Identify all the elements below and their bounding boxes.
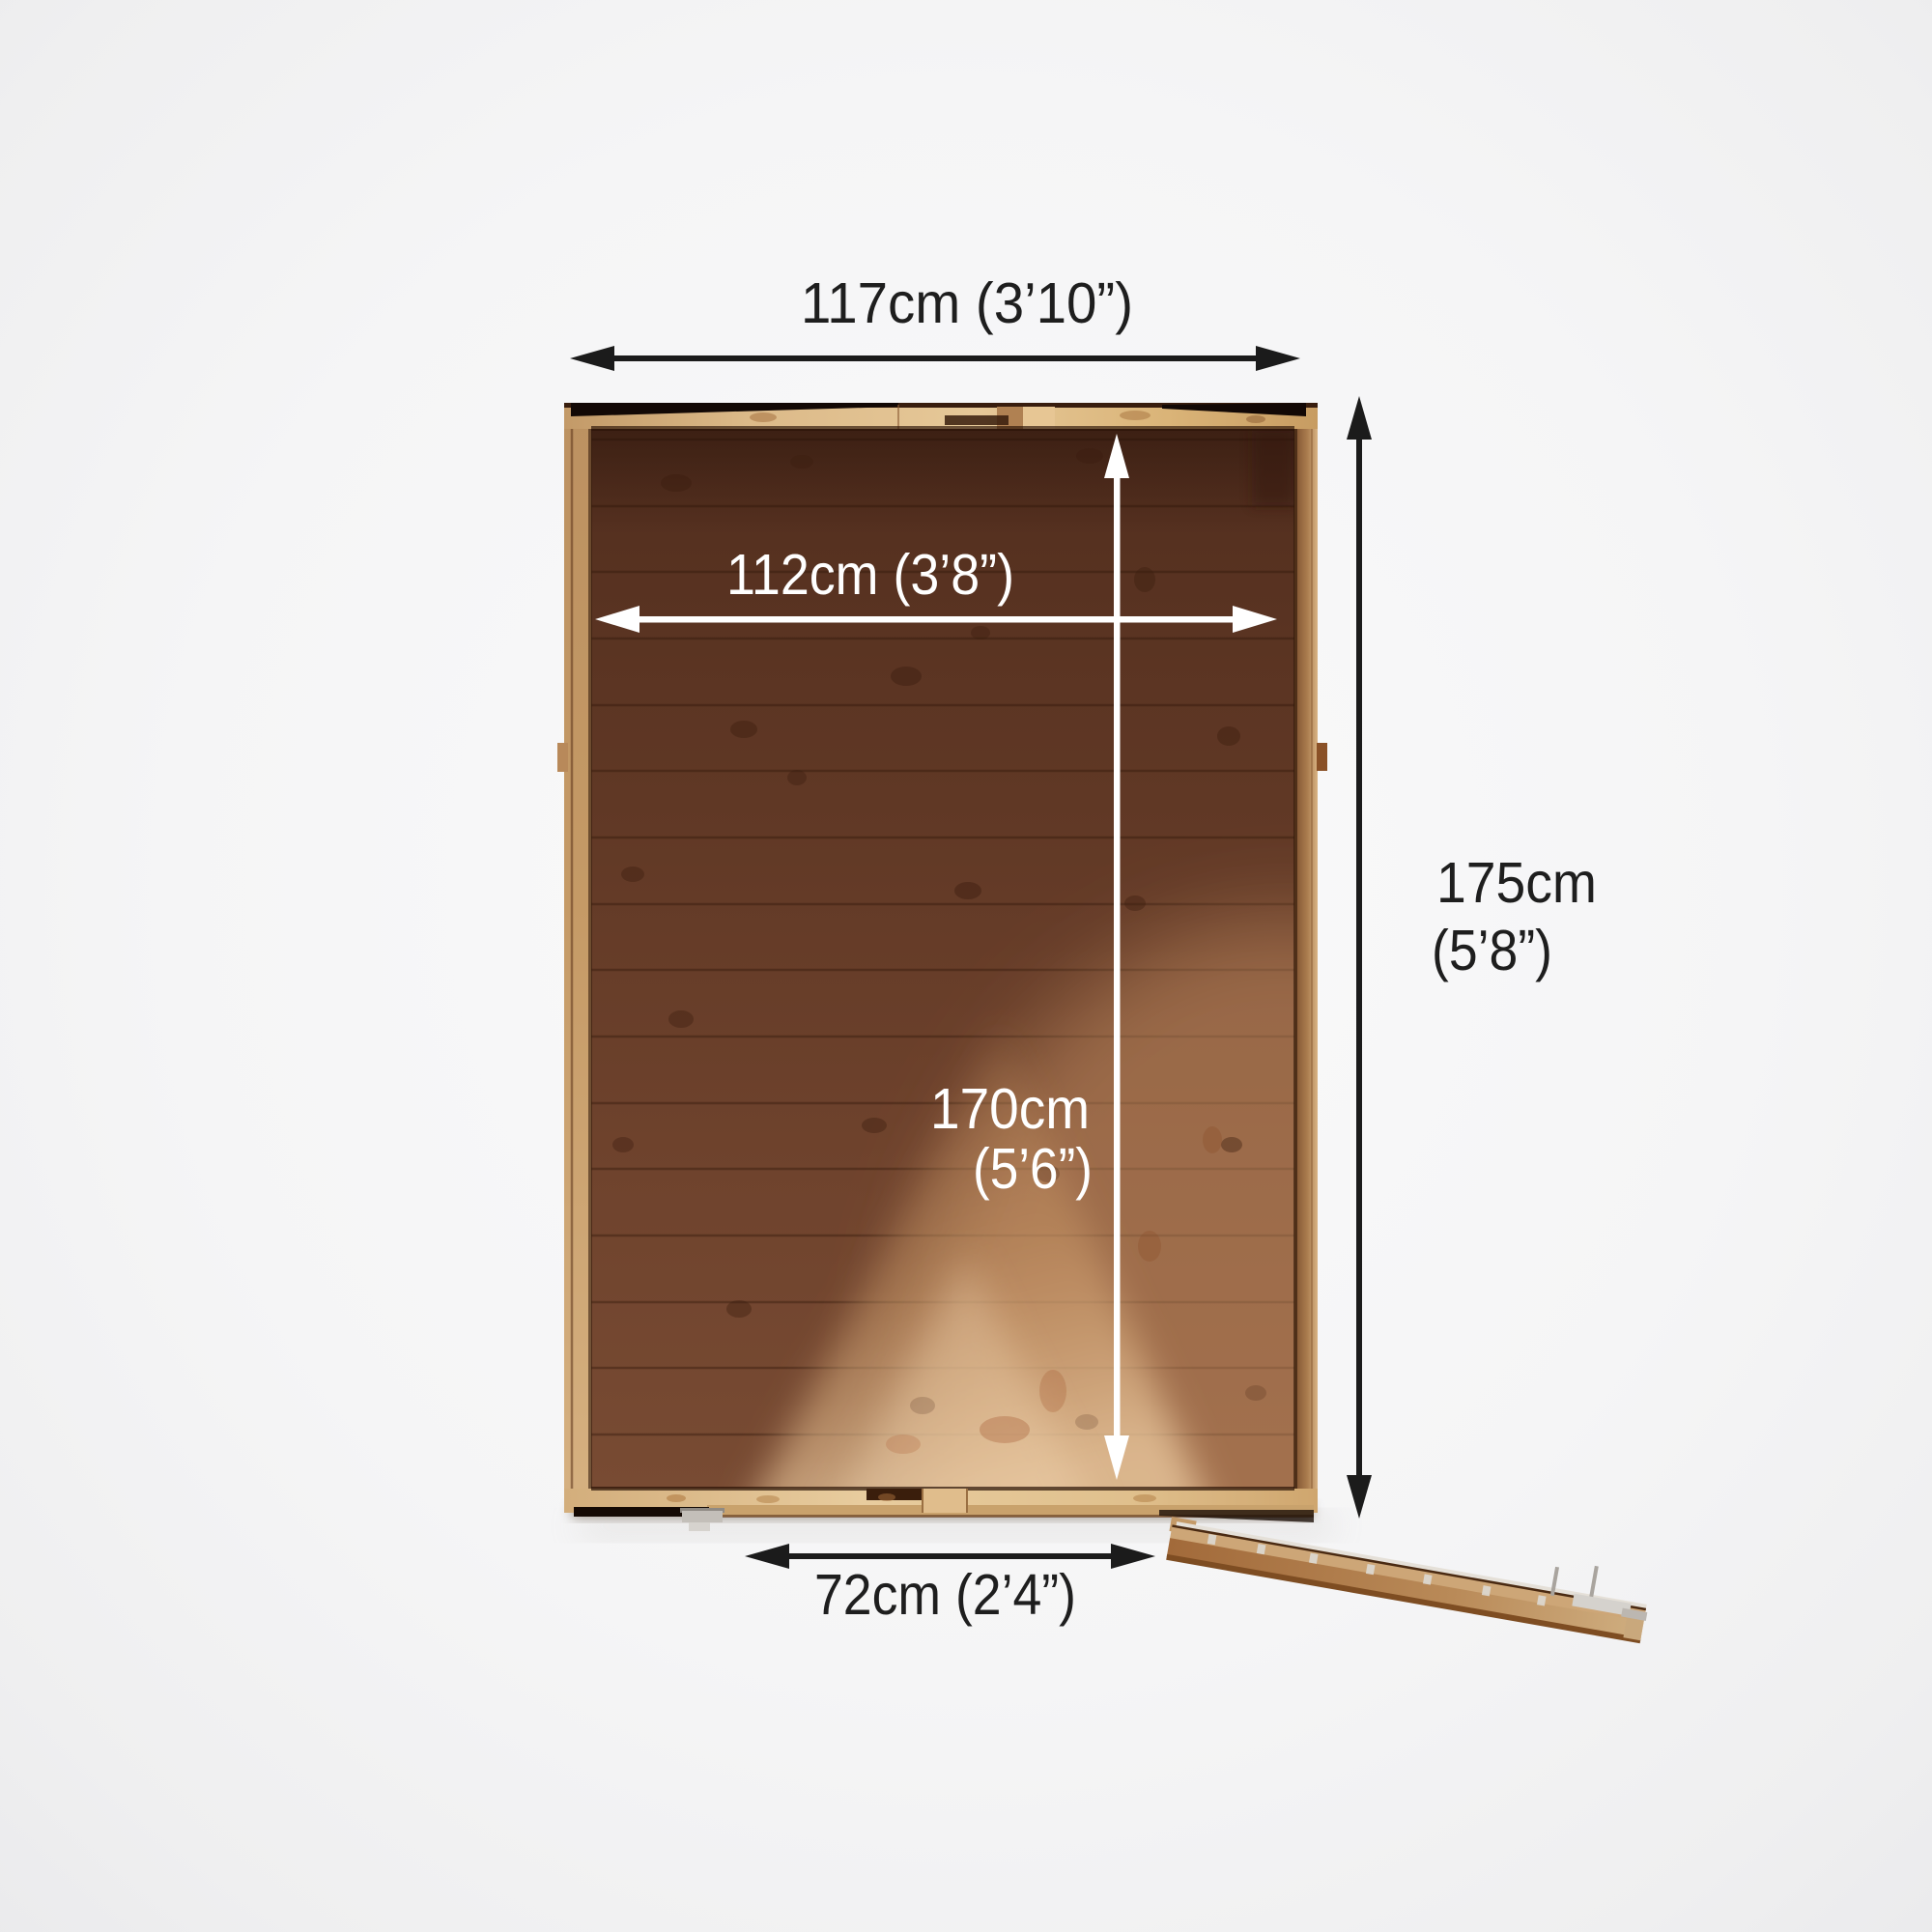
svg-text:72cm (2’4”): 72cm (2’4”)	[814, 1563, 1076, 1627]
svg-text:(5’8”): (5’8”)	[1432, 919, 1552, 982]
svg-text:112cm (3’8”): 112cm (3’8”)	[726, 543, 1014, 607]
svg-text:117cm (3’10”): 117cm (3’10”)	[801, 271, 1133, 335]
svg-text:170cm: 170cm	[930, 1077, 1090, 1141]
svg-text:(5’6”): (5’6”)	[973, 1137, 1093, 1201]
svg-text:175cm: 175cm	[1436, 851, 1597, 915]
